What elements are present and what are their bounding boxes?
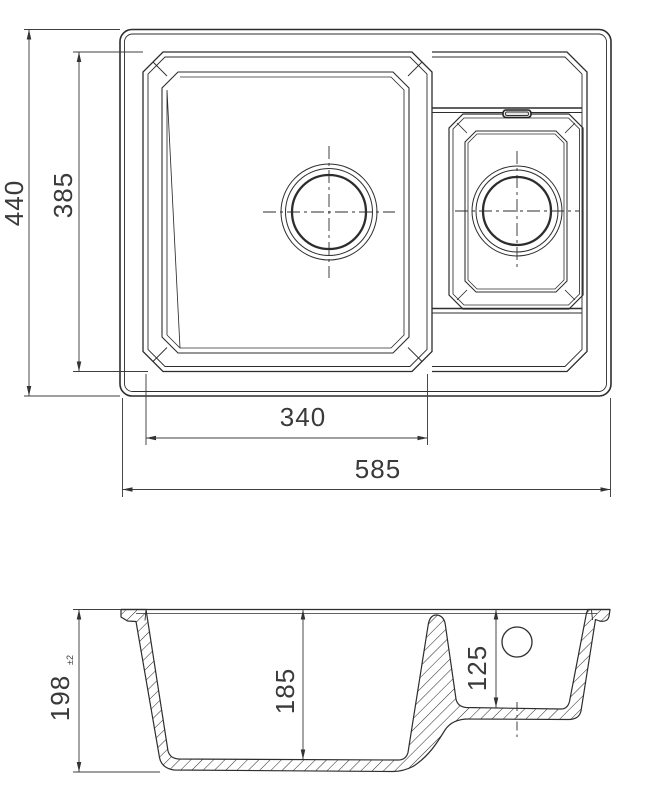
overflow-slot [503, 110, 531, 118]
dim-label-total-width: 585 [355, 454, 401, 484]
technical-drawing-page: 440 385 340 585 [0, 0, 650, 800]
small-drain-centerlines [455, 151, 579, 271]
dim-label-opening-height: 385 [48, 172, 78, 218]
dim-main-bowl-depth [301, 610, 306, 760]
small-bowl-corner-connectors [457, 123, 575, 300]
small-bowl-rim [449, 114, 583, 309]
section-shell [121, 610, 610, 772]
small-drain [455, 151, 579, 271]
sink-technical-drawing: 440 385 340 585 [0, 0, 650, 800]
dim-label-main-bowl-width: 340 [280, 402, 326, 432]
main-drain [263, 146, 395, 278]
dim-label-total-height: 440 [0, 180, 29, 226]
section-drain-hole [502, 627, 532, 657]
dim-small-bowl-depth [494, 610, 499, 708]
top-view [120, 30, 611, 397]
dim-label-total-depth-tolerance: ±2 [65, 655, 75, 665]
dim-opening-height [73, 52, 148, 372]
dim-label-total-depth: 198 [45, 675, 75, 721]
top-view-dimension-labels: 440 385 340 585 [0, 172, 401, 484]
right-section-rim-inner-line [432, 57, 582, 367]
main-drain-centerlines [263, 146, 395, 278]
dim-label-main-bowl-depth: 185 [270, 668, 300, 714]
section-view [121, 610, 610, 772]
dim-label-small-bowl-depth: 125 [462, 645, 492, 691]
